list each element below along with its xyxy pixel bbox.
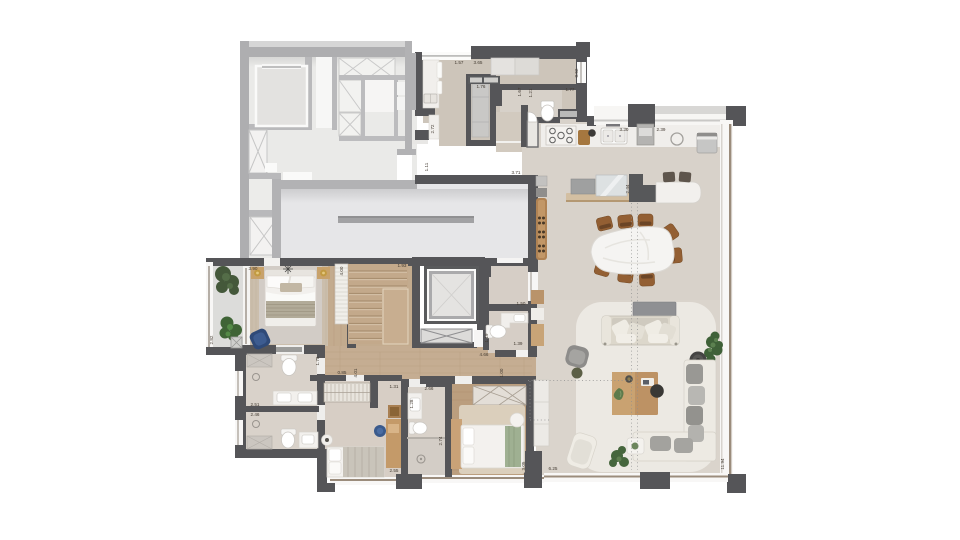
svg-text:1.28: 1.28	[409, 399, 414, 408]
svg-text:1.00: 1.00	[499, 368, 504, 377]
svg-text:1.11: 1.11	[424, 162, 429, 171]
svg-text:2.44: 2.44	[625, 184, 630, 193]
svg-text:0.62: 0.62	[574, 68, 579, 77]
svg-text:2.39: 2.39	[657, 127, 666, 132]
svg-text:4.01: 4.01	[353, 368, 358, 377]
svg-text:1.21: 1.21	[528, 88, 533, 97]
svg-text:3.90: 3.90	[249, 266, 258, 271]
svg-text:1.31: 1.31	[390, 384, 399, 389]
svg-text:1.93: 1.93	[398, 263, 407, 268]
svg-text:0.85: 0.85	[338, 370, 347, 375]
svg-text:2.55: 2.55	[390, 468, 399, 473]
svg-text:1.50: 1.50	[517, 301, 526, 306]
svg-text:3.65: 3.65	[474, 60, 483, 65]
svg-text:2.82: 2.82	[209, 335, 214, 344]
svg-text:11.94: 11.94	[720, 458, 725, 470]
svg-text:1.67: 1.67	[517, 87, 522, 96]
svg-text:2.72: 2.72	[430, 124, 435, 133]
svg-text:3.05: 3.05	[521, 461, 526, 470]
svg-text:2.66: 2.66	[425, 386, 434, 391]
svg-text:3.71: 3.71	[512, 170, 521, 175]
svg-text:1.78: 1.78	[315, 356, 320, 365]
svg-text:2.46: 2.46	[251, 412, 260, 417]
svg-text:1.77: 1.77	[566, 87, 575, 92]
svg-text:1.76: 1.76	[477, 84, 486, 89]
svg-text:1.57: 1.57	[455, 60, 464, 65]
svg-text:4.00: 4.00	[339, 266, 344, 275]
svg-text:1.39: 1.39	[514, 341, 523, 346]
svg-text:1.19: 1.19	[484, 333, 489, 342]
svg-text:2.51: 2.51	[251, 402, 260, 407]
svg-text:4.66: 4.66	[480, 352, 489, 357]
svg-text:6.25: 6.25	[549, 466, 558, 471]
svg-text:3.30: 3.30	[620, 127, 629, 132]
svg-text:2.74: 2.74	[438, 436, 443, 445]
